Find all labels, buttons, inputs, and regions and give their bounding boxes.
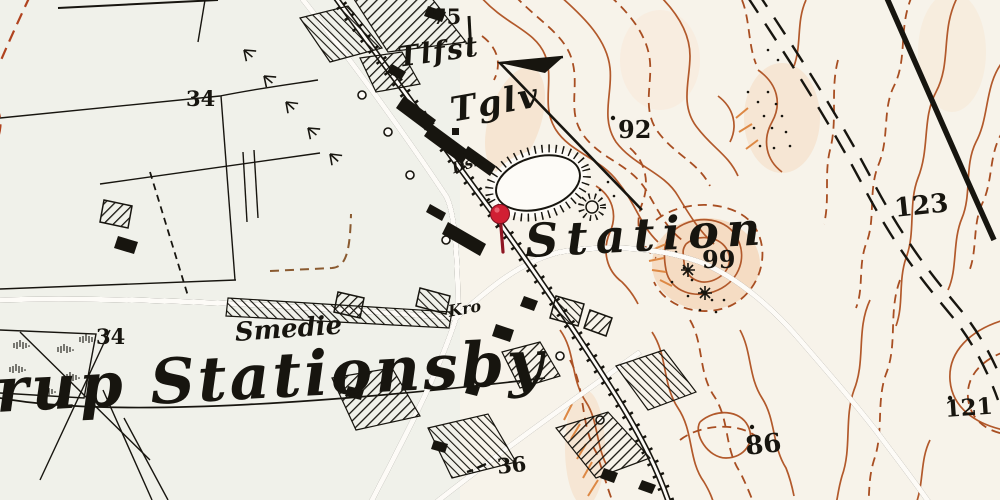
historical-map-canvas: 75 Tlfst Tglv 92 123 Dsk Station 99 Kro …	[0, 0, 1000, 500]
map-linework	[0, 0, 1000, 500]
